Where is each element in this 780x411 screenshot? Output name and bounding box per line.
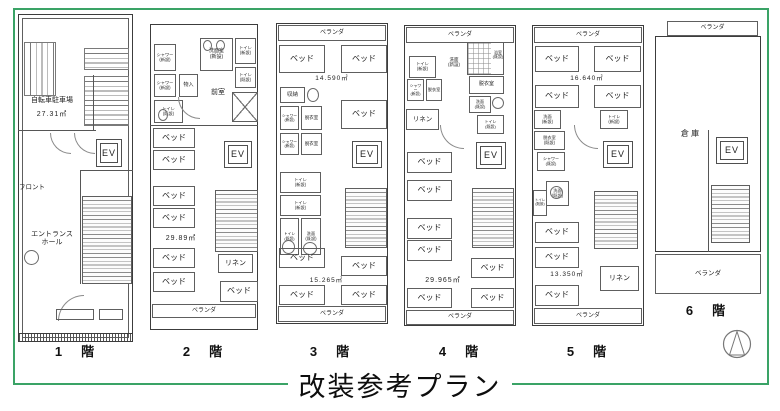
elevator-label: EV [228,145,248,164]
bed-room: ベッド [407,180,452,201]
veranda: ベランダ [534,27,642,43]
elevator: EV [224,141,252,168]
bed-room: ベッド [535,46,579,72]
tile-grid [468,43,491,74]
veranda: ベランダ [667,21,758,36]
bed-room: ベッド [153,128,195,148]
veranda: ベランダ [406,310,514,325]
wall-line [93,75,94,131]
area-label: 27.31㎡ [26,110,78,119]
ground-hatch [19,333,132,342]
veranda: ベランダ [534,308,642,324]
bed-room: ベッド [407,218,452,239]
bed-room: ベッド [153,272,195,292]
bed-room: ベッド [279,45,325,73]
shaft-x-brace [232,92,258,122]
stairs [345,188,387,248]
room: 物入 [179,74,198,97]
floor-2-label: 2 階 [182,345,226,359]
bed-room: ベッド [341,256,387,276]
area-label: 16.640㎡ [562,75,612,83]
floor-1-label: 1 階 [54,345,98,359]
bed-room: ベッド [535,285,579,306]
area-label: 29.89㎡ [158,234,204,243]
floor-5-label: 5 階 [566,345,610,359]
stairs [711,185,750,243]
room-label: 洗面 (新設) [441,52,467,72]
elevator-label: EV [100,143,118,163]
fixture [307,88,319,102]
elevator-label: EV [607,145,629,164]
room: 脱衣室 [469,76,504,94]
area-label: 14.590㎡ [308,75,356,83]
sink [216,40,225,51]
bed-room: ベッド [535,222,579,243]
stairs [472,188,514,248]
room: シャワー (新設) [154,44,176,71]
room: リネン [218,254,253,273]
elevator: EV [476,142,506,169]
room: 洗面 (既設) [469,96,491,113]
room-label: エントランス ホール [28,228,76,250]
room-label: 浴室 (既設) [491,47,505,63]
bed-room: ベッド [153,248,195,268]
room-label: フロント [16,183,48,192]
elevator: EV [603,141,633,168]
bed-room: ベッド [220,281,258,302]
veranda: ベランダ [655,254,761,294]
sink [550,186,563,199]
bike-rack [24,42,56,96]
note-box [99,309,123,320]
shelf-bars [84,48,129,70]
sink [492,97,504,109]
bed-room: ベッド [279,285,325,305]
elevator-label: EV [480,146,502,165]
room: リネン [600,266,639,291]
stairs [594,191,638,249]
bed-room: ベッド [407,152,452,173]
veranda: ベランダ [406,27,514,43]
bed-room: ベッド [341,285,387,305]
room-label: 自転車駐車場 [23,96,81,106]
sheet-title: 改装参考プラン [288,363,512,405]
bed-room: ベッド [341,45,387,73]
veranda: ベランダ [278,306,386,322]
room: 脱衣室 [426,79,442,101]
room: トイレ (新設) [280,195,321,216]
bed-room: ベッド [341,100,387,129]
ramp-lines [84,76,129,126]
room: シャワー (新設) [154,74,176,97]
room: トイレ (新設) [600,110,628,129]
plan-canvas: 自転車駐車場27.31㎡EVフロントエントランス ホール1 階シャワー (新設)… [0,0,780,411]
room: シャワー (新設) [280,133,299,155]
room: 洗面 (新設) [534,110,561,129]
room: トイレ (既設) [533,190,547,216]
bed-room: ベッド [279,248,325,268]
room: トイレ (新設) [409,56,436,78]
wall-line [80,170,133,171]
room-label: 倉 庫 [670,128,710,140]
veranda: ベランダ [152,304,256,318]
stairs [82,196,132,284]
area-label: 15.265㎡ [303,277,350,285]
room: 脱衣室 [301,133,322,155]
bed-room: ベッド [153,186,195,206]
room: トイレ (新設) [280,172,321,193]
area-label: 13.350㎡ [544,271,590,279]
stairs [215,190,258,252]
floor-4-label: 4 階 [438,345,482,359]
wall-line [80,170,81,284]
veranda: ベランダ [278,25,386,41]
wall-line [150,125,258,126]
bed-room: ベッド [407,240,452,261]
bed-room: ベッド [594,46,641,72]
elevator: EV [96,139,122,167]
floor-3-label: 3 階 [309,345,353,359]
room-label: 前室 [203,88,233,98]
bed-room: ベッド [153,150,195,170]
compass-icon [719,327,755,361]
wall-line [708,130,709,252]
bed-room: ベッド [407,288,452,308]
room: 脱衣室 (既設) [534,131,565,150]
room: トイレ (新設) [235,38,256,64]
room: シャワー (新設) [280,106,299,130]
room: 脱衣室 [301,106,322,130]
renovation-plan-sheet: 自転車駐車場27.31㎡EVフロントエントランス ホール1 階シャワー (新設)… [0,0,780,411]
table [24,250,39,265]
floor-6-label: 6 階 [685,304,729,318]
elevator-label: EV [720,141,744,160]
bed-room: ベッド [535,247,579,268]
sink [203,40,212,51]
bed-room: ベッド [153,208,195,228]
toilet [158,109,168,121]
room: リネン [406,109,439,130]
elevator-label: EV [356,145,378,164]
bed-room: ベッド [471,288,514,308]
area-label: 29.965㎡ [418,277,468,285]
room: シャワー (既設) [537,152,565,171]
room: トイレ (既設) [235,67,256,88]
wall-line [18,130,96,131]
bed-room: ベッド [535,85,579,108]
bed-room: ベッド [471,258,514,278]
elevator: EV [352,141,382,168]
room: シャワー (新設) [407,79,424,101]
elevator: EV [716,137,748,164]
note-box [56,309,94,320]
room: トイレ (既設) [477,115,504,134]
room: 収納 [280,87,305,103]
bed-room: ベッド [594,85,641,108]
